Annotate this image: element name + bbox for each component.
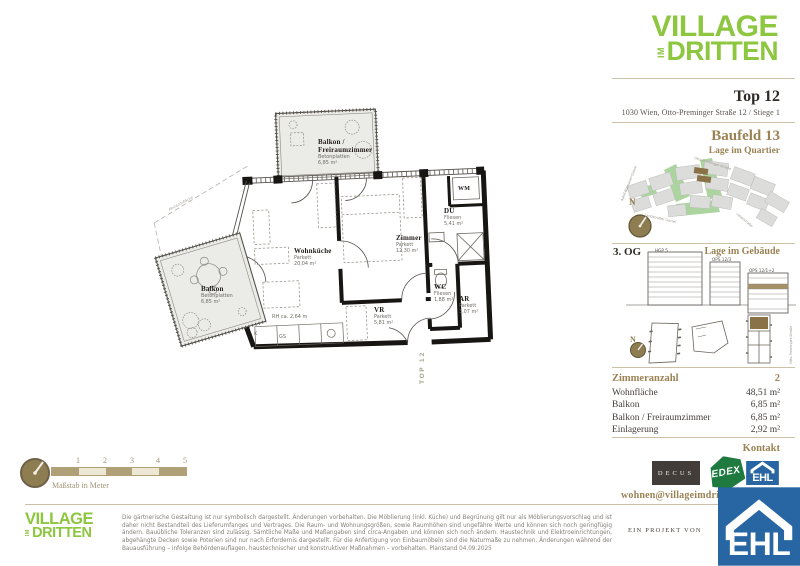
brand-im: IM [26, 529, 32, 536]
disclaimer-text: Die gärtnerische Gestaltung ist nur symb… [122, 515, 612, 553]
room-label-balkon: Balkon Betonplatten 6,85 m² [201, 285, 233, 305]
brand-line2: DRITTEN [32, 527, 91, 540]
brand-im: IM [657, 47, 666, 58]
scale-tick: 2 [103, 456, 107, 465]
brand-logo-top: VILLAGE IM DRITTEN [651, 14, 778, 64]
ehl-logo-small: EHL [746, 461, 779, 485]
room-label-wohnkueche: Wohnküche Parkett 20,04 m² [294, 247, 332, 267]
detail-row-einlagerung: Einlagerung 2,92 m² [612, 425, 780, 435]
washing-machine-label: WM [458, 186, 470, 192]
kontakt-heading: Kontakt [612, 443, 780, 454]
footprint-left [644, 319, 685, 368]
room-label-wc: WC Fliesen 1,88 m² [434, 283, 453, 303]
ehl-logo-small-text: EHL [746, 472, 779, 484]
detail-value: 6,85 m² [751, 400, 780, 410]
unit-details-table: Zimmeranzahl 2 Wohnfläche 48,51 m² Balko… [612, 373, 780, 438]
detail-label: Einlagerung [612, 425, 658, 435]
highlighted-floor [748, 284, 788, 289]
street-label-right: Otto-Preminger-Straße [789, 326, 793, 364]
scale-bar [52, 468, 186, 475]
map-compass-icon [629, 215, 651, 237]
scale-tick: 3 [130, 456, 134, 465]
room-label-freiraumzimmer: Balkon / Freiraumzimmer Betonplatten 6,8… [318, 138, 372, 166]
detail-row-freiraumzimmer: Balkon / Freiraumzimmer 6,85 m² [612, 413, 780, 423]
ehl-logo-large: EHL [718, 487, 800, 566]
detail-label: Balkon [612, 400, 639, 410]
detail-row-zimmeranzahl: Zimmeranzahl 2 [612, 373, 780, 384]
edex-logo-text: EDEX [711, 465, 742, 481]
divider [612, 243, 795, 244]
kitchen-gs-label: GS [279, 334, 286, 340]
gebaeude-compass-icon [631, 343, 646, 358]
quartier-map [610, 150, 800, 245]
decus-logo-text: DECUS [658, 470, 694, 477]
room-label-ar: AR Parkett 3,07 m² [459, 295, 478, 315]
building-label-2: OPS 12/3 [712, 257, 731, 262]
room-label-zimmer: Zimmer Parkett 12,30 m² [396, 234, 422, 254]
ehl-logo-large-text: EHL [718, 526, 800, 563]
room-label-vr: VR Parkett 5,81 m² [374, 306, 393, 326]
brand-line2: DRITTEN [667, 40, 778, 63]
footprint-middle [692, 321, 728, 353]
page-title: Top 12 [612, 88, 780, 106]
decus-logo: DECUS [652, 461, 700, 485]
address-line: 1030 Wien, Otto-Preminger Straße 12 / St… [600, 108, 780, 117]
divider [25, 504, 795, 505]
flat-factsheet-page: Balkon / Freiraumzimmer Betonplatten 6,8… [0, 0, 800, 566]
scale-compass-icon [18, 453, 54, 491]
room-label-du: DU Fliesen 5,41 m² [444, 207, 463, 227]
room-height-note: RH ca. 2,64 m [272, 314, 307, 320]
divider [612, 367, 795, 368]
divider [612, 437, 795, 438]
project-note: EIN PROJEKT VON [628, 527, 702, 534]
detail-row-wohnflaeche: Wohnfläche 48,51 m² [612, 388, 780, 398]
detail-value: 48,51 m² [746, 388, 780, 398]
detail-value: 6,85 m² [751, 413, 780, 423]
gebaeude-compass-n: N [630, 335, 636, 344]
detail-label: Balkon / Freiraumzimmer [612, 413, 711, 423]
divider [612, 78, 795, 79]
scale-tick: 1 [76, 456, 80, 465]
detail-value: 2 [775, 373, 780, 384]
detail-label: Wohnfläche [612, 388, 658, 398]
apartment-floor [229, 171, 490, 351]
building-label-3: OPS 12/1+2 [749, 268, 774, 273]
footprint-right [746, 315, 772, 363]
scale-tick: 4 [156, 456, 160, 465]
gebaeude-diagram [610, 245, 800, 373]
detail-label: Zimmeranzahl [612, 373, 679, 384]
quartier-compass-n: N [629, 197, 636, 207]
building-label-1: HGP 5 [655, 248, 668, 253]
detail-row-balkon: Balkon 6,85 m² [612, 400, 780, 410]
scale-tick: 5 [183, 456, 187, 465]
baufeld-heading: Baufeld 13 [612, 128, 780, 145]
detail-value: 2,92 m² [751, 425, 780, 435]
brand-logo-footer: VILLAGE IM DRITTEN [25, 512, 93, 539]
divider [612, 122, 795, 123]
unit-number-label: TOP 12 [419, 351, 426, 384]
scale-caption: Maßstab in Meter [52, 481, 109, 490]
kitchen-k-label: K [254, 331, 257, 337]
